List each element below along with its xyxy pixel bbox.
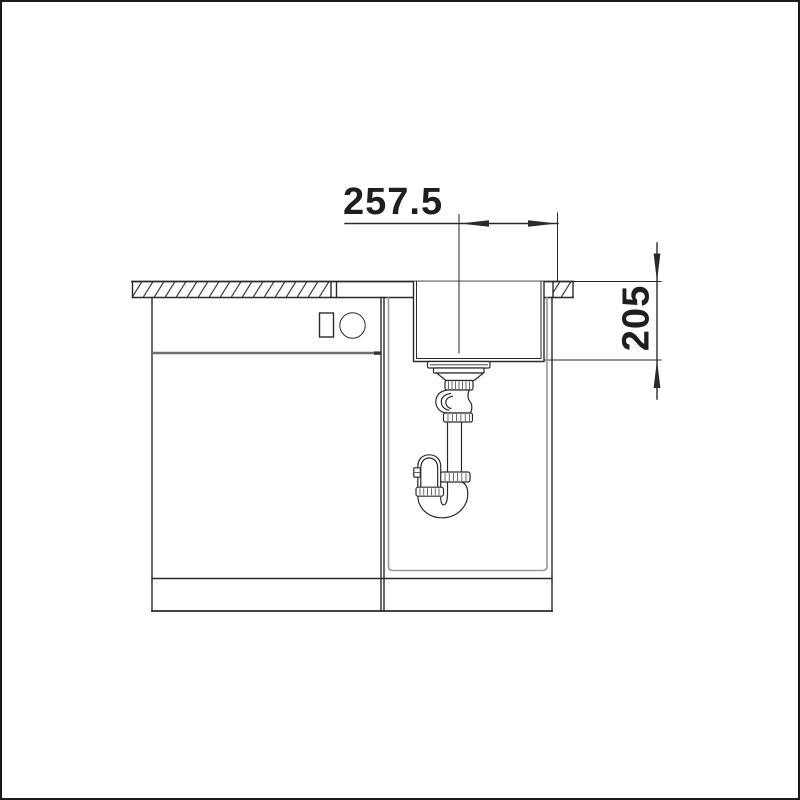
dimension-vertical: 205 xyxy=(545,243,661,399)
strainer-cup xyxy=(437,373,484,381)
fitting-rectangle xyxy=(320,313,334,337)
bowl-fill xyxy=(414,282,545,362)
dimension-vertical-label: 205 xyxy=(616,285,658,351)
arrow-left-icon xyxy=(460,220,489,227)
drain-strainer xyxy=(428,362,491,391)
sink-bowl xyxy=(414,282,545,362)
siphon-trap xyxy=(414,390,473,518)
arrow-up-icon xyxy=(654,360,661,388)
dimension-horizontal-label: 257.5 xyxy=(343,181,443,223)
image-border xyxy=(1,1,799,799)
fitting-circle xyxy=(340,313,365,338)
strainer-body xyxy=(434,368,485,373)
countertop-right-hatch xyxy=(553,282,573,297)
drawer-divider-cap xyxy=(374,351,381,354)
arrow-right-icon xyxy=(528,220,557,227)
strainer-nut-ribs xyxy=(449,382,470,390)
technical-drawing-page: 257.5 205 xyxy=(0,0,800,800)
countertop-left-hatch xyxy=(133,282,331,297)
sink-cabinet-diagram: 257.5 205 xyxy=(0,0,800,800)
arrow-down-icon xyxy=(654,254,661,282)
